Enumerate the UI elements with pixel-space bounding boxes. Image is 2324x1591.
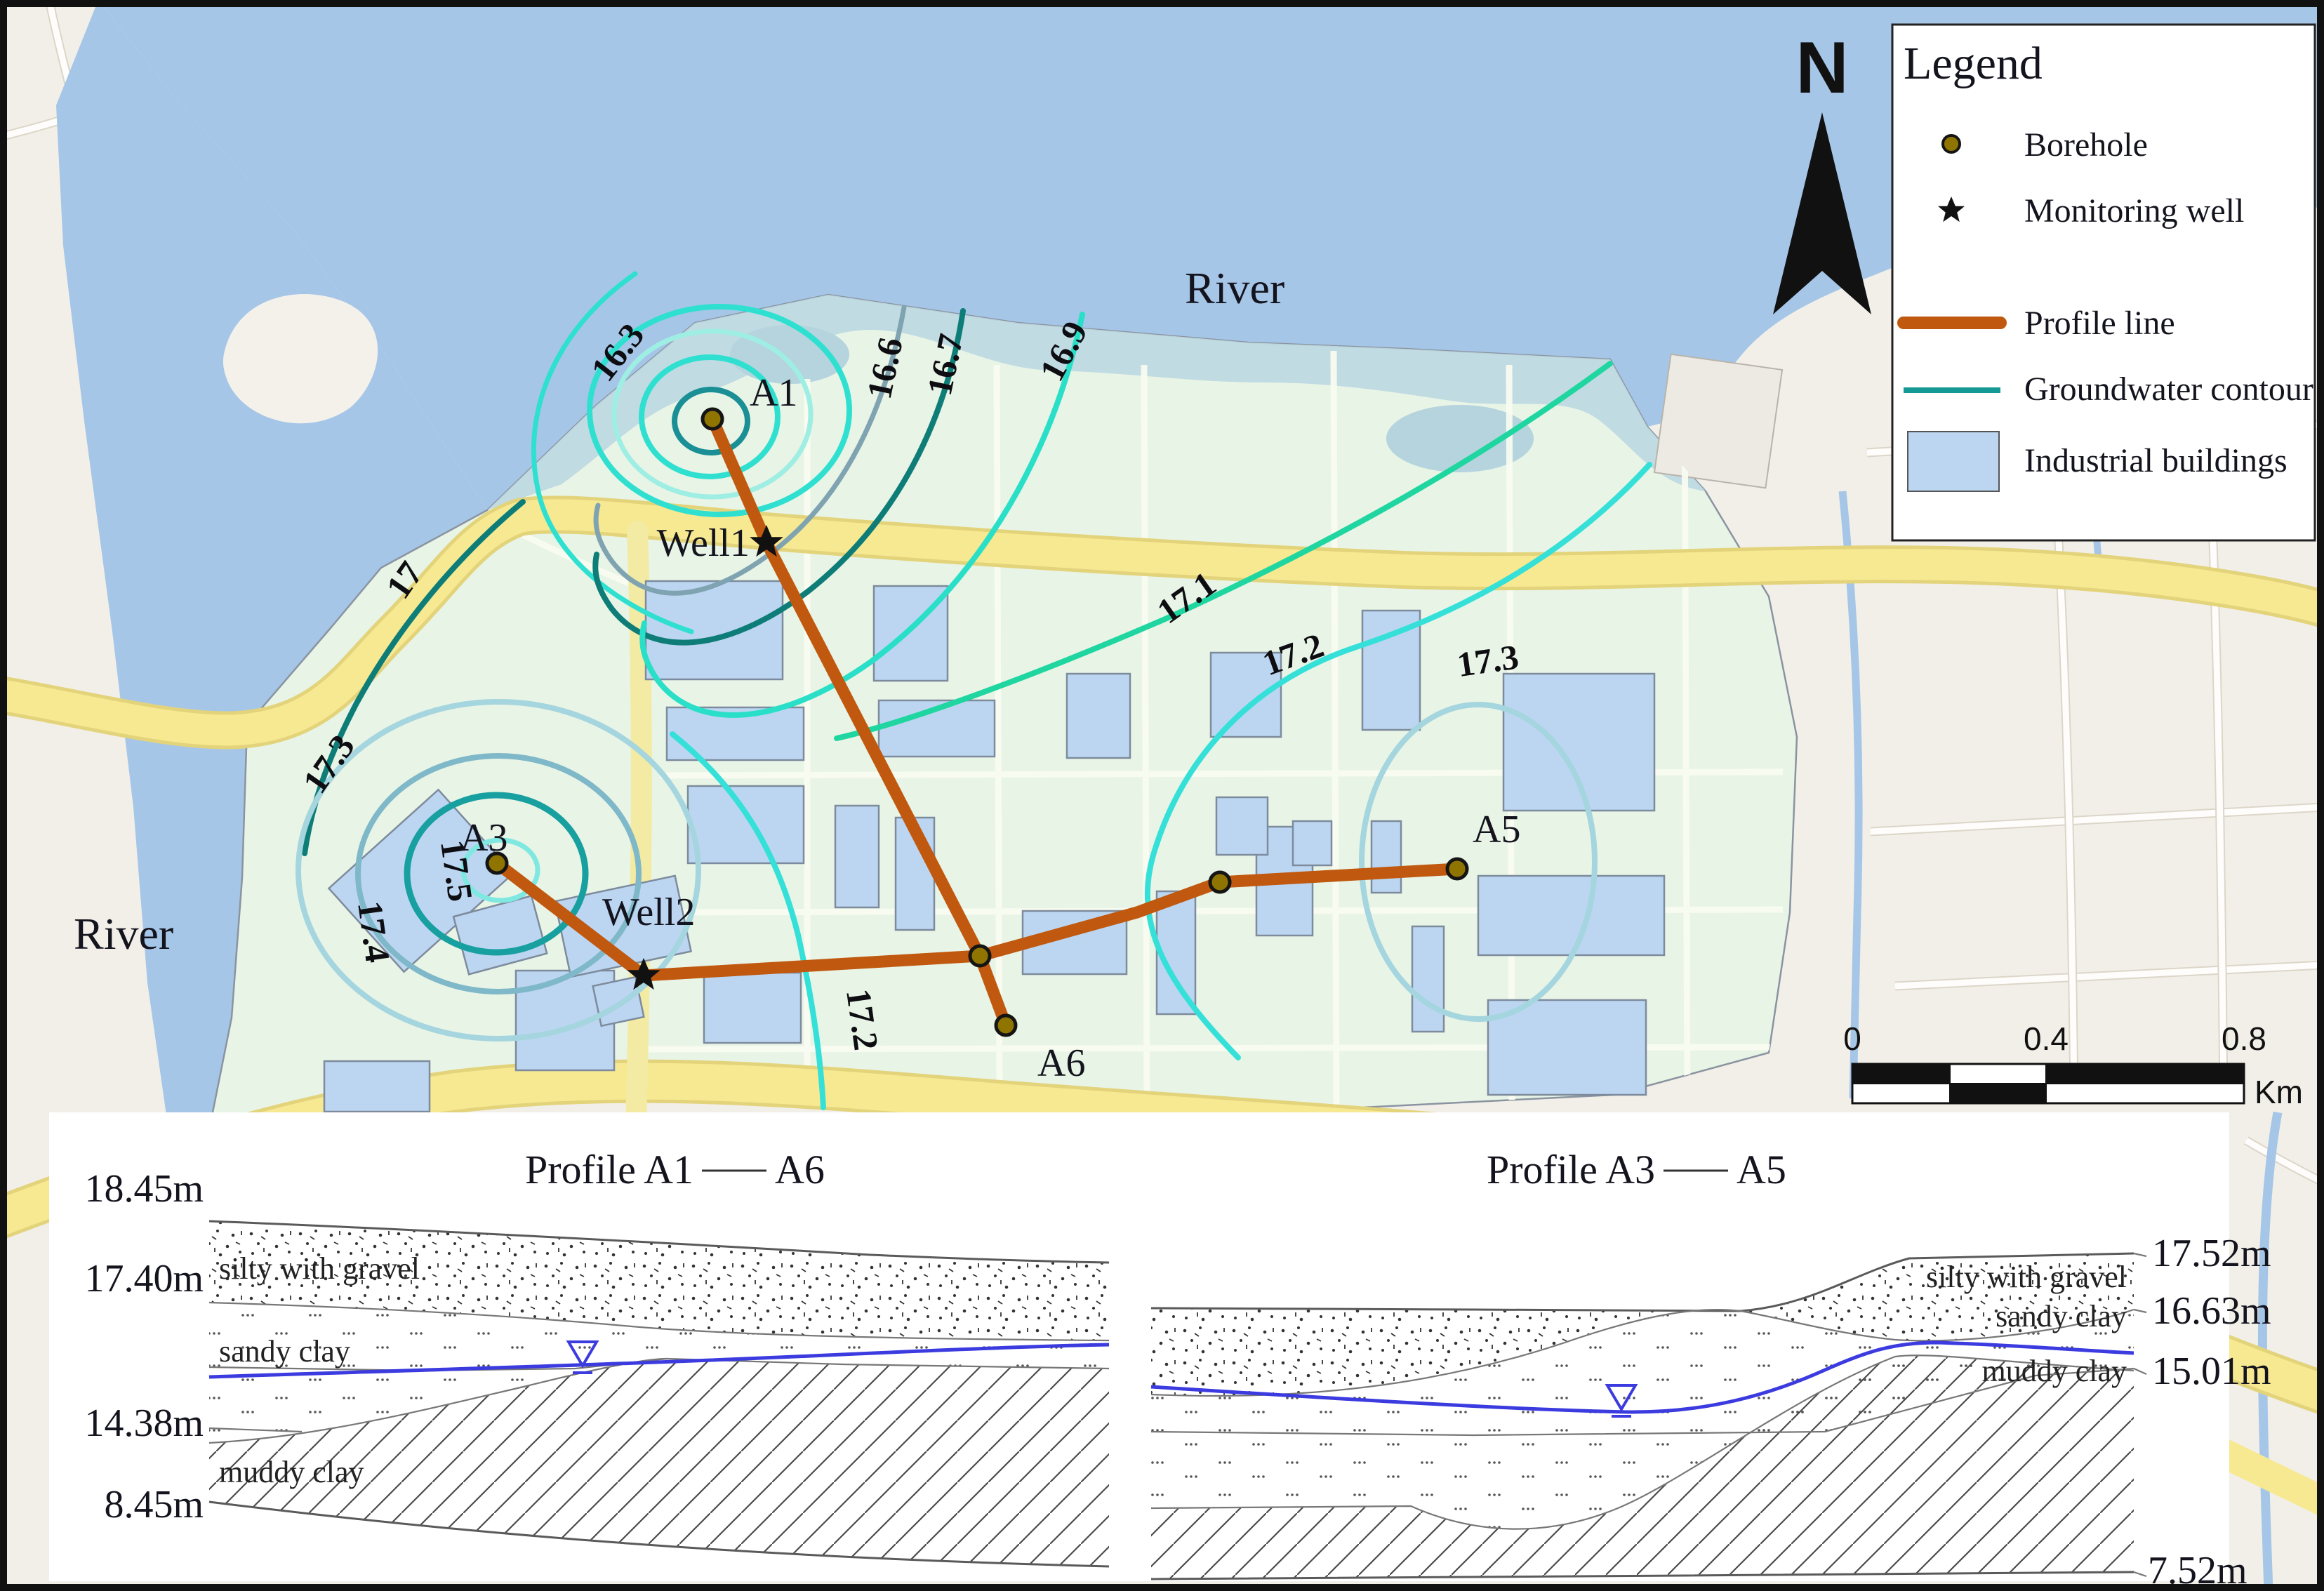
legend-title: Legend — [1904, 38, 2043, 89]
industrial-building — [1412, 926, 1444, 1032]
industrial-building — [1478, 876, 1664, 955]
elevation-label: 16.63m — [2152, 1289, 2271, 1333]
scale-segment — [1950, 1084, 2046, 1103]
industrial-building — [1372, 821, 1401, 893]
legend-borehole-icon — [1943, 135, 1960, 152]
industrial-building — [646, 581, 783, 679]
legend: Legend Borehole Monitoring well Profile … — [1892, 25, 2315, 540]
profile-left-title: Profile A1 — [525, 1147, 693, 1192]
scale-tick-0: 0 — [1843, 1020, 1861, 1057]
elevation-label: 17.52m — [2152, 1232, 2271, 1275]
scale-segment — [2046, 1064, 2244, 1084]
elevation-label: 14.38m — [84, 1402, 204, 1445]
elevation-label: 8.45m — [104, 1483, 204, 1526]
industrial-building — [1067, 674, 1130, 758]
industrial-building — [1216, 797, 1268, 855]
elevation-label: 15.01m — [2152, 1350, 2271, 1393]
profile-right-title: Profile A3 — [1487, 1147, 1655, 1192]
label-A6: A6 — [1037, 1041, 1085, 1085]
label-A3: A3 — [460, 816, 507, 860]
label-Well2: Well2 — [602, 891, 695, 934]
legend-item-label: Monitoring well — [2024, 192, 2244, 229]
layer-label: silty with gravel — [1926, 1260, 2127, 1294]
legend-item-label: Groundwater contour — [2024, 371, 2313, 408]
scale-segment — [2046, 1084, 2244, 1103]
industrial-building — [704, 973, 801, 1043]
borehole-junction — [970, 946, 990, 966]
industrial-building — [1293, 821, 1332, 865]
borehole-A6 — [996, 1016, 1016, 1035]
pale-building-ne — [1654, 354, 1782, 488]
legend-item-label: Profile line — [2024, 305, 2175, 342]
legend-item-label: Borehole — [2024, 126, 2148, 164]
scale-segment — [1950, 1064, 2046, 1084]
scale-segment — [1852, 1084, 1950, 1103]
industrial-building — [835, 806, 879, 907]
borehole-A1 — [703, 409, 722, 429]
label-river-top: River — [1185, 263, 1284, 313]
figure-canvas: 16.3 16.6 16.7 16.9 17 17.1 17.2 17.2 17… — [0, 0, 2324, 1591]
elevation-label: 17.40m — [84, 1257, 204, 1300]
label-A1: A1 — [750, 371, 797, 415]
north-label: N — [1795, 27, 1848, 109]
label-Well1: Well1 — [657, 521, 750, 565]
industrial-building — [324, 1061, 430, 1112]
layer-label: sandy clay — [219, 1334, 350, 1369]
vertical-road — [636, 531, 642, 1123]
borehole-A5 — [1447, 859, 1467, 879]
elevation-label: 18.45m — [84, 1167, 204, 1211]
profile-right-title-end: A5 — [1737, 1147, 1786, 1192]
scale-unit: Km — [2255, 1074, 2303, 1110]
scale-tick-08: 0.8 — [2222, 1020, 2266, 1057]
profiles-panel: Profile A1 A6 18.45m 17.40m 14.38m 8. — [49, 1112, 2271, 1591]
scale-tick-04: 0.4 — [2024, 1020, 2069, 1057]
scale-segment — [1852, 1064, 1950, 1084]
layer-label: muddy clay — [1981, 1354, 2127, 1388]
profile-left-title-end: A6 — [775, 1147, 825, 1192]
legend-industrial-building-icon — [1908, 432, 1999, 491]
layer-label: sandy clay — [1996, 1299, 2127, 1333]
legend-item-label: Industrial buildings — [2024, 442, 2288, 479]
map-figure: 16.3 16.6 16.7 16.9 17 17.1 17.2 17.2 17… — [0, 0, 2324, 1591]
industrial-building — [688, 786, 804, 863]
layer-label: muddy clay — [219, 1455, 364, 1489]
label-A5: A5 — [1473, 808, 1520, 851]
borehole-mid-east — [1210, 872, 1230, 892]
label-river-left: River — [74, 909, 173, 959]
layer-label: silty with gravel — [219, 1251, 420, 1286]
